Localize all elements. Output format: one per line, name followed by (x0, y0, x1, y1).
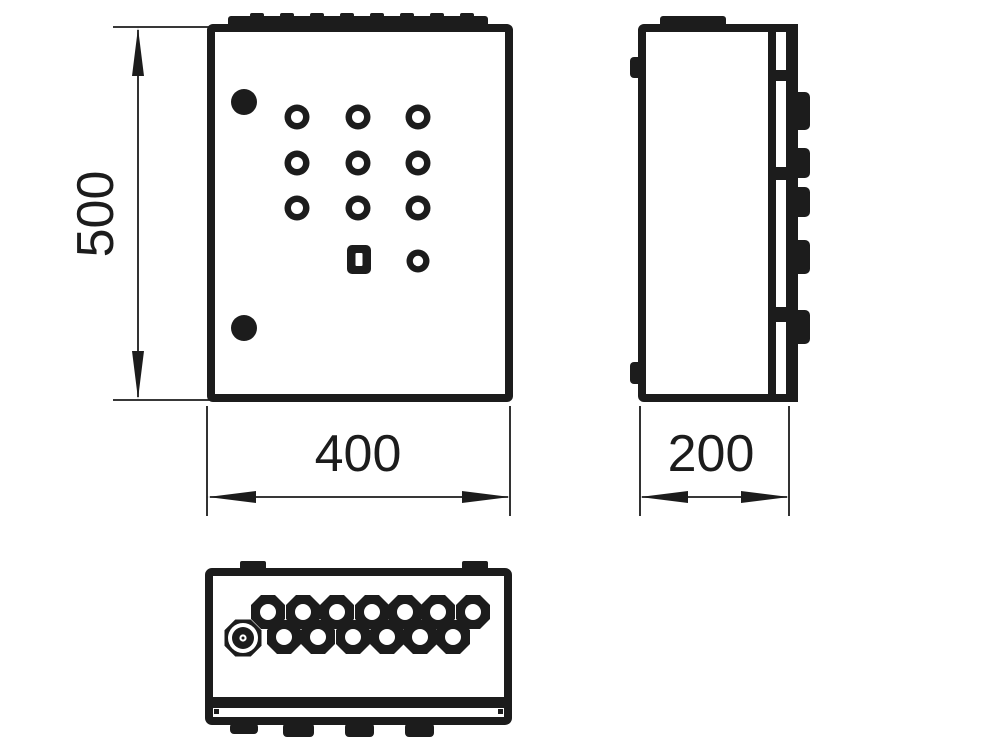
indicator-lamp (285, 151, 310, 176)
arrowhead-down (132, 351, 144, 399)
indicator-lamp-grid (285, 105, 431, 221)
bottom-view (209, 561, 508, 737)
corner-fillet (498, 709, 503, 714)
indicator-lamp (346, 196, 371, 221)
front-edge-tab (345, 723, 374, 737)
arrowhead-up (132, 28, 144, 76)
arrowhead-left (208, 491, 256, 503)
front-edge-tab (405, 723, 434, 737)
door-lock-top (231, 89, 257, 115)
key-switch (347, 245, 371, 274)
arrowhead-right (741, 491, 789, 503)
cable-gland (436, 620, 470, 654)
technical-drawing: 500 400 200 (0, 0, 1000, 750)
dimension-depth: 200 (640, 406, 789, 516)
mounting-bracket (793, 148, 810, 178)
mounting-bracket (793, 92, 810, 130)
arrowhead-left (640, 491, 688, 503)
mounting-bracket (793, 310, 810, 344)
cable-gland (370, 620, 404, 654)
cable-gland (267, 620, 301, 654)
dimension-height: 500 (67, 27, 213, 400)
rail-bottom-connector (770, 394, 798, 402)
door-lock-bottom (231, 315, 257, 341)
cable-gland (301, 620, 335, 654)
door-latch-bump (630, 57, 642, 78)
rail-top-connector (770, 24, 798, 32)
door-latch-bump (630, 362, 642, 384)
dimension-label-height: 500 (67, 171, 125, 258)
earth-gland (225, 620, 262, 657)
door-edge-bar (213, 697, 504, 708)
indicator-lamp (406, 105, 431, 130)
cable-gland (403, 620, 437, 654)
enclosure-side-body (642, 28, 772, 398)
hinge-pin (775, 70, 786, 81)
indicator-lamp (406, 151, 431, 176)
indicator-lamp (346, 105, 371, 130)
indicator-lamp (285, 196, 310, 221)
cable-gland (336, 620, 370, 654)
mounting-bracket (793, 240, 810, 274)
front-view (211, 13, 509, 398)
dimension-width: 400 (207, 406, 510, 516)
mounting-bracket (793, 187, 810, 217)
front-edge-tab (283, 723, 314, 737)
key-slot (356, 253, 363, 266)
arrowhead-right (462, 491, 510, 503)
indicator-lamp (346, 151, 371, 176)
indicator-lamp-small (407, 250, 430, 273)
corner-fillet (214, 709, 219, 714)
hinge-pin (775, 307, 786, 322)
dimension-label-depth: 200 (668, 425, 755, 483)
front-edge-tab (230, 723, 258, 734)
indicator-lamp (285, 105, 310, 130)
side-view (630, 16, 810, 402)
drawing-svg: 500 400 200 (0, 0, 1000, 750)
hinge-pin (775, 167, 786, 180)
indicator-lamp (406, 196, 431, 221)
dimension-label-width: 400 (315, 425, 402, 483)
